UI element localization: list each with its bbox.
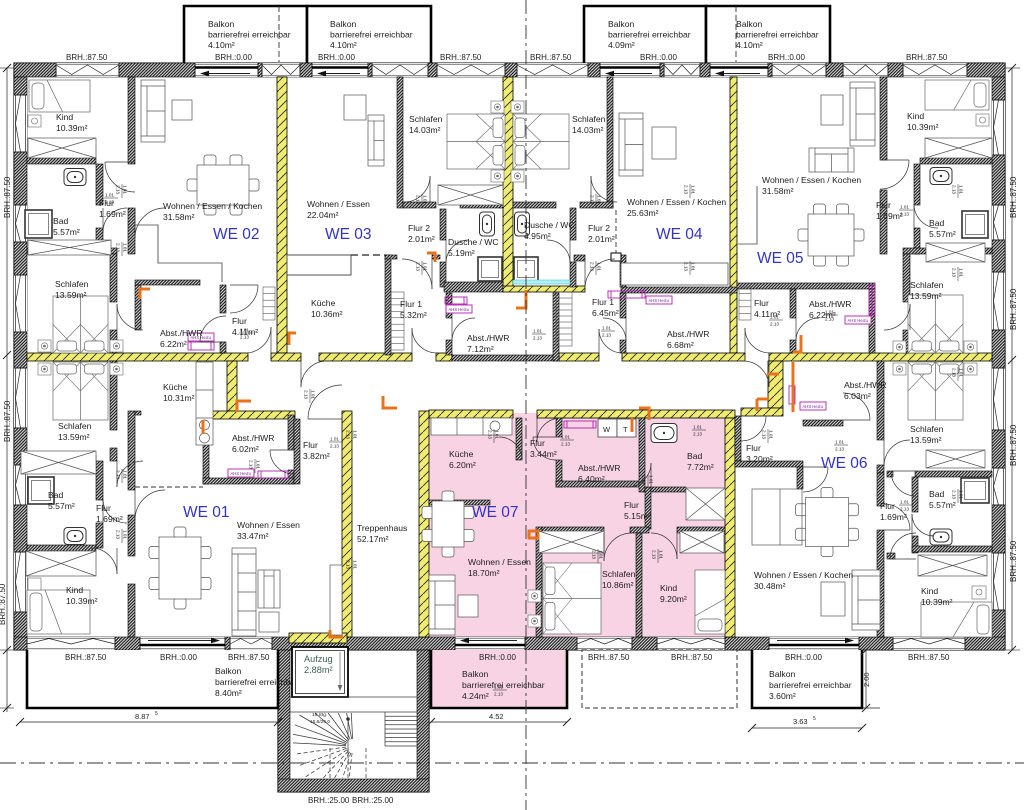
svg-text:Küche: Küche — [311, 298, 336, 308]
svg-text:3.20m²: 3.20m² — [746, 454, 773, 464]
svg-text:BRH.:87.50: BRH.:87.50 — [3, 400, 12, 442]
svg-text:Küche: Küche — [449, 449, 474, 459]
svg-text:4.10m²: 4.10m² — [208, 40, 235, 50]
svg-text:2.13: 2.13 — [416, 195, 421, 204]
svg-text:AHS Heizu: AHS Heizu — [449, 307, 470, 312]
svg-text:BRH.:87.50: BRH.:87.50 — [228, 653, 270, 662]
svg-text:1.01: 1.01 — [659, 550, 664, 559]
svg-text:Treppenhaus: Treppenhaus — [357, 523, 407, 533]
svg-text:Schlafen: Schlafen — [602, 569, 636, 579]
svg-text:5: 5 — [813, 716, 816, 722]
svg-text:2.13: 2.13 — [533, 336, 542, 341]
svg-text:31.58m²: 31.58m² — [163, 212, 195, 222]
svg-text:2.13: 2.13 — [693, 432, 702, 437]
svg-text:1.69m²: 1.69m² — [880, 512, 907, 522]
svg-text:1.01: 1.01 — [599, 550, 604, 559]
svg-text:2.13: 2.13 — [105, 200, 114, 205]
svg-text:1.01: 1.01 — [423, 262, 428, 271]
svg-text:WE 01: WE 01 — [183, 504, 230, 521]
svg-text:1.69m²: 1.69m² — [876, 211, 903, 221]
svg-text:Abst./HWR: Abst./HWR — [844, 380, 887, 390]
svg-text:Bad: Bad — [48, 490, 64, 500]
svg-text:2.13: 2.13 — [488, 430, 493, 439]
svg-text:13.59m²: 13.59m² — [910, 291, 942, 301]
svg-text:1.01: 1.01 — [691, 185, 696, 194]
svg-text:2.13: 2.13 — [900, 212, 909, 217]
svg-text:2.13: 2.13 — [304, 390, 309, 399]
svg-text:1.01: 1.01 — [959, 185, 964, 194]
svg-text:Flur 2: Flur 2 — [408, 223, 430, 233]
svg-text:Schlafen: Schlafen — [55, 279, 89, 289]
svg-text:13.59m²: 13.59m² — [58, 432, 90, 442]
svg-text:2.13: 2.13 — [835, 447, 844, 452]
svg-text:WE 06: WE 06 — [821, 455, 868, 472]
svg-text:1.01: 1.01 — [959, 268, 964, 277]
svg-text:1.01: 1.01 — [256, 460, 261, 469]
svg-text:6.20m²: 6.20m² — [449, 460, 476, 470]
svg-text:3.82m²: 3.82m² — [303, 451, 330, 461]
svg-text:2.13: 2.13 — [952, 185, 957, 194]
svg-text:Bad: Bad — [687, 451, 703, 461]
svg-text:1.01: 1.01 — [597, 262, 602, 271]
svg-text:2.13: 2.13 — [592, 550, 597, 559]
svg-text:8.87: 8.87 — [135, 712, 150, 721]
svg-text:1.01: 1.01 — [900, 500, 909, 505]
svg-text:4.24m²: 4.24m² — [462, 691, 489, 701]
svg-text:1.01: 1.01 — [123, 530, 128, 539]
svg-text:5: 5 — [155, 711, 158, 717]
svg-text:3.60m²: 3.60m² — [769, 691, 796, 701]
svg-text:1.01: 1.01 — [649, 475, 654, 484]
svg-text:10.39m²: 10.39m² — [921, 597, 953, 607]
svg-text:AHS Heizu: AHS Heizu — [231, 471, 252, 476]
svg-text:BRH.:87.50: BRH.:87.50 — [65, 653, 107, 662]
svg-text:Schlafen: Schlafen — [58, 421, 92, 431]
svg-text:2.13: 2.13 — [900, 507, 909, 512]
svg-text:2.13: 2.13 — [561, 442, 570, 447]
svg-text:Schlafen: Schlafen — [910, 424, 944, 434]
svg-text:16 Stg.: 16 Stg. — [312, 712, 327, 718]
svg-text:31.58m²: 31.58m² — [762, 186, 794, 196]
svg-text:1.01: 1.01 — [959, 490, 964, 499]
svg-text:2.13: 2.13 — [952, 490, 957, 499]
svg-text:2.13: 2.13 — [116, 530, 121, 539]
svg-text:BRH.:87.50: BRH.:87.50 — [1009, 540, 1018, 582]
svg-text:18.70m²: 18.70m² — [468, 568, 500, 578]
svg-text:Balkon: Balkon — [769, 669, 795, 679]
svg-text:Kind: Kind — [907, 111, 924, 121]
svg-text:5.32m²: 5.32m² — [400, 310, 427, 320]
svg-text:14.03m²: 14.03m² — [409, 125, 441, 135]
svg-text:2.13: 2.13 — [116, 243, 121, 252]
svg-text:2.88m²: 2.88m² — [304, 665, 333, 675]
svg-text:BRH.:0.00: BRH.:0.00 — [215, 53, 252, 62]
svg-text:WE 03: WE 03 — [325, 226, 372, 243]
svg-text:1.01: 1.01 — [533, 329, 542, 334]
svg-text:BRH.:87.50: BRH.:87.50 — [1009, 176, 1018, 218]
svg-text:2.13: 2.13 — [652, 550, 657, 559]
svg-text:Flur 2: Flur 2 — [588, 223, 610, 233]
svg-text:2.13: 2.13 — [642, 475, 647, 484]
svg-text:4.09m²: 4.09m² — [608, 40, 635, 50]
svg-text:16.6/26.0: 16.6/26.0 — [310, 719, 330, 725]
svg-text:Küche: Küche — [163, 382, 188, 392]
svg-text:Flur: Flur — [876, 200, 891, 210]
svg-text:52.17m²: 52.17m² — [357, 534, 389, 544]
svg-text:4.52: 4.52 — [489, 712, 504, 721]
svg-text:5.15m²: 5.15m² — [624, 511, 651, 521]
svg-text:1.01: 1.01 — [959, 368, 964, 377]
svg-text:WE 04: WE 04 — [656, 226, 703, 243]
svg-text:BRH.:87.50: BRH.:87.50 — [588, 653, 630, 662]
svg-text:Wohnen / Essen / Kochen: Wohnen / Essen / Kochen — [762, 175, 861, 185]
svg-text:1.01: 1.01 — [770, 315, 779, 320]
svg-text:barrierefrei erreichbar: barrierefrei erreichbar — [769, 680, 852, 690]
svg-text:Bad: Bad — [929, 489, 945, 499]
svg-text:barrierefrei erreichbar: barrierefrei erreichbar — [736, 30, 819, 40]
svg-text:Kind: Kind — [56, 112, 73, 122]
svg-text:T: T — [623, 425, 628, 434]
svg-text:AHS Heizu: AHS Heizu — [649, 298, 670, 303]
svg-text:1.01: 1.01 — [123, 185, 128, 194]
svg-text:BRH.:0.00: BRH.:0.00 — [479, 653, 516, 662]
svg-text:1.01: 1.01 — [240, 328, 249, 333]
svg-text:2.13: 2.13 — [116, 185, 121, 194]
svg-text:10.39m²: 10.39m² — [907, 122, 939, 132]
svg-text:Wohnen / Essen / Kochen: Wohnen / Essen / Kochen — [627, 197, 726, 207]
svg-text:BRH.:0.00: BRH.:0.00 — [160, 653, 197, 662]
svg-text:BRH.:0.00: BRH.:0.00 — [768, 53, 805, 62]
svg-text:Wohnen / Essen / Kochen: Wohnen / Essen / Kochen — [754, 570, 853, 580]
svg-text:Balkon: Balkon — [215, 666, 241, 676]
svg-text:33.47m²: 33.47m² — [237, 531, 269, 541]
svg-text:Abst./HWR: Abst./HWR — [160, 328, 203, 338]
svg-text:10.36m²: 10.36m² — [311, 309, 343, 319]
svg-text:BRH.:25.00: BRH.:25.00 — [308, 796, 350, 805]
svg-text:Abst./HWR: Abst./HWR — [667, 329, 710, 339]
svg-text:barrierefrei erreichbar: barrierefrei erreichbar — [608, 30, 691, 40]
svg-text:Abst./HWR: Abst./HWR — [232, 433, 275, 443]
svg-text:2.13: 2.13 — [602, 333, 611, 338]
svg-text:WE 07: WE 07 — [472, 504, 519, 521]
svg-text:2.13: 2.13 — [684, 262, 689, 271]
svg-text:14.03m²: 14.03m² — [572, 125, 604, 135]
svg-text:2.13: 2.13 — [494, 692, 503, 697]
svg-text:1.01: 1.01 — [330, 437, 339, 442]
svg-text:2.13: 2.13 — [825, 317, 834, 322]
svg-text:1.69m²: 1.69m² — [99, 209, 126, 219]
svg-text:Balkon: Balkon — [208, 19, 234, 29]
svg-text:AHS Heizu: AHS Heizu — [848, 318, 869, 323]
svg-text:BRH.:87.50: BRH.:87.50 — [1009, 288, 1018, 330]
svg-text:2.13: 2.13 — [952, 268, 957, 277]
svg-text:1.01: 1.01 — [602, 326, 611, 331]
svg-text:10.39m²: 10.39m² — [66, 596, 98, 606]
svg-text:3.63: 3.63 — [793, 717, 808, 726]
svg-text:Schlafen: Schlafen — [572, 114, 606, 124]
svg-text:3.44m²: 3.44m² — [530, 449, 557, 459]
svg-text:2.13: 2.13 — [770, 322, 779, 327]
svg-text:BRH.:0.00: BRH.:0.00 — [318, 53, 355, 62]
svg-text:4.10m²: 4.10m² — [736, 40, 763, 50]
svg-text:2.13: 2.13 — [249, 460, 254, 469]
svg-text:30.48m²: 30.48m² — [754, 581, 786, 591]
svg-text:BRH.:87.50: BRH.:87.50 — [3, 176, 12, 218]
svg-text:W: W — [603, 425, 611, 434]
svg-text:1.69m²: 1.69m² — [96, 514, 123, 524]
svg-text:BRH.:87.50: BRH.:87.50 — [66, 53, 108, 62]
svg-text:Dusche / WC: Dusche / WC — [448, 237, 499, 247]
svg-text:1.01: 1.01 — [494, 685, 503, 690]
svg-text:BRH.:87.50: BRH.:87.50 — [0, 583, 7, 625]
svg-text:2.13: 2.13 — [330, 444, 339, 449]
svg-text:10.86m²: 10.86m² — [602, 580, 634, 590]
svg-text:1.01: 1.01 — [769, 430, 774, 439]
svg-text:2.01m²: 2.01m² — [588, 234, 615, 244]
svg-text:Flur 1: Flur 1 — [400, 299, 422, 309]
svg-text:2.13: 2.13 — [416, 262, 421, 271]
svg-text:AHS Heizu: AHS Heizu — [803, 404, 824, 409]
svg-text:Wohnen / Essen / Kochen: Wohnen / Essen / Kochen — [163, 201, 262, 211]
svg-text:1.01: 1.01 — [693, 425, 702, 430]
svg-text:1.01: 1.01 — [691, 262, 696, 271]
svg-text:Bad: Bad — [53, 216, 69, 226]
svg-text:1.01: 1.01 — [311, 390, 316, 399]
svg-text:5.19m²: 5.19m² — [448, 248, 475, 258]
svg-text:2.13: 2.13 — [116, 470, 121, 479]
svg-text:1.01: 1.01 — [423, 195, 428, 204]
svg-text:2.13: 2.13 — [952, 368, 957, 377]
svg-text:1.01: 1.01 — [353, 430, 358, 439]
svg-text:BRH.:0.00: BRH.:0.00 — [640, 53, 677, 62]
svg-text:Schlafen: Schlafen — [910, 280, 944, 290]
svg-text:Wohnen / Essen: Wohnen / Essen — [468, 557, 531, 567]
svg-text:BRH.:87.50: BRH.:87.50 — [908, 653, 950, 662]
svg-text:BRH.:87.50: BRH.:87.50 — [530, 53, 572, 62]
svg-text:BRH.:87.50: BRH.:87.50 — [906, 53, 948, 62]
svg-text:Flur: Flur — [880, 501, 895, 511]
svg-text:BRH.:0.00: BRH.:0.00 — [785, 653, 822, 662]
svg-text:1.01: 1.01 — [123, 470, 128, 479]
svg-text:WE 05: WE 05 — [757, 250, 804, 267]
svg-text:Flur: Flur — [624, 500, 639, 510]
svg-text:Abst./HWR: Abst./HWR — [467, 333, 510, 343]
svg-text:barrierefrei erreichbar: barrierefrei erreichbar — [462, 680, 545, 690]
svg-text:6.22m²: 6.22m² — [160, 339, 187, 349]
svg-text:1.01: 1.01 — [825, 310, 834, 315]
svg-text:5.57m²: 5.57m² — [929, 229, 956, 239]
svg-text:2.13: 2.13 — [240, 335, 249, 340]
svg-text:BRH.:87.50: BRH.:87.50 — [440, 53, 482, 62]
svg-text:5.57m²: 5.57m² — [48, 501, 75, 511]
svg-text:10.31m²: 10.31m² — [163, 393, 195, 403]
svg-text:Flur: Flur — [232, 316, 247, 326]
svg-text:2.13: 2.13 — [346, 430, 351, 439]
svg-text:Abst./HWR: Abst./HWR — [578, 463, 621, 473]
svg-text:7.72m²: 7.72m² — [687, 462, 714, 472]
svg-text:2.13: 2.13 — [590, 195, 595, 204]
svg-text:4.95m²: 4.95m² — [524, 231, 551, 241]
svg-text:13.59m²: 13.59m² — [910, 435, 942, 445]
svg-text:BRH.:87.50: BRH.:87.50 — [671, 653, 713, 662]
svg-text:2.13: 2.13 — [762, 430, 767, 439]
svg-text:2.01m²: 2.01m² — [408, 234, 435, 244]
svg-text:Abst./HWR: Abst./HWR — [809, 299, 852, 309]
svg-text:1.01: 1.01 — [123, 243, 128, 252]
svg-text:WE 02: WE 02 — [213, 226, 260, 243]
svg-text:Balkon: Balkon — [462, 669, 488, 679]
svg-text:Flur: Flur — [96, 503, 111, 513]
svg-text:8.40m²: 8.40m² — [215, 688, 242, 698]
svg-text:25.63m²: 25.63m² — [627, 208, 659, 218]
svg-text:barrierefrei erreichbar: barrierefrei erreichbar — [330, 30, 413, 40]
svg-text:2.13: 2.13 — [590, 262, 595, 271]
svg-text:Balkon: Balkon — [736, 19, 762, 29]
svg-text:Flur: Flur — [754, 298, 769, 308]
svg-text:1.01: 1.01 — [105, 193, 114, 198]
svg-text:5.57m²: 5.57m² — [53, 227, 80, 237]
svg-text:Aufzug: Aufzug — [304, 654, 333, 664]
svg-text:Kind: Kind — [921, 586, 938, 596]
svg-text:13.59m²: 13.59m² — [55, 290, 87, 300]
svg-text:BRH.:87.50: BRH.:87.50 — [1009, 424, 1018, 466]
svg-text:1.01: 1.01 — [835, 440, 844, 445]
svg-text:7.12m²: 7.12m² — [467, 344, 494, 354]
svg-text:Kind: Kind — [66, 585, 83, 595]
svg-text:6.40m²: 6.40m² — [578, 474, 605, 484]
svg-text:Flur: Flur — [303, 440, 318, 450]
svg-text:Wohnen / Essen: Wohnen / Essen — [307, 199, 370, 209]
svg-text:5.57m²: 5.57m² — [929, 500, 956, 510]
svg-text:1.01: 1.01 — [900, 205, 909, 210]
svg-text:6.02m²: 6.02m² — [232, 444, 259, 454]
svg-text:6.03m²: 6.03m² — [844, 391, 871, 401]
svg-text:10.39m²: 10.39m² — [56, 123, 88, 133]
svg-text:2.13: 2.13 — [346, 560, 351, 569]
svg-text:9.20m²: 9.20m² — [660, 594, 687, 604]
svg-text:1.01: 1.01 — [597, 195, 602, 204]
svg-text:2.00: 2.00 — [862, 672, 871, 687]
svg-text:Flur 1: Flur 1 — [592, 297, 614, 307]
svg-text:1.01: 1.01 — [495, 430, 500, 439]
svg-text:Wohnen / Essen: Wohnen / Essen — [237, 520, 300, 530]
svg-text:Flur: Flur — [530, 438, 545, 448]
svg-text:BRH.:25.00: BRH.:25.00 — [352, 796, 394, 805]
svg-text:6.45m²: 6.45m² — [592, 308, 619, 318]
svg-text:Schlafen: Schlafen — [409, 114, 443, 124]
svg-text:1.01: 1.01 — [561, 435, 570, 440]
svg-text:Dusche / WC: Dusche / WC — [524, 220, 575, 230]
svg-text:Kind: Kind — [660, 583, 677, 593]
svg-text:4.10m²: 4.10m² — [330, 40, 357, 50]
svg-text:1.01: 1.01 — [353, 560, 358, 569]
svg-text:22.04m²: 22.04m² — [307, 210, 339, 220]
svg-text:barrierefrei erreichbar: barrierefrei erreichbar — [208, 30, 291, 40]
svg-text:Balkon: Balkon — [608, 19, 634, 29]
svg-text:Flur: Flur — [746, 443, 761, 453]
svg-text:2.13: 2.13 — [684, 185, 689, 194]
svg-text:Balkon: Balkon — [330, 19, 356, 29]
svg-text:barrierefrei erreichbar: barrierefrei erreichbar — [215, 677, 298, 687]
svg-text:Bad: Bad — [929, 218, 945, 228]
svg-text:6.68m²: 6.68m² — [667, 340, 694, 350]
